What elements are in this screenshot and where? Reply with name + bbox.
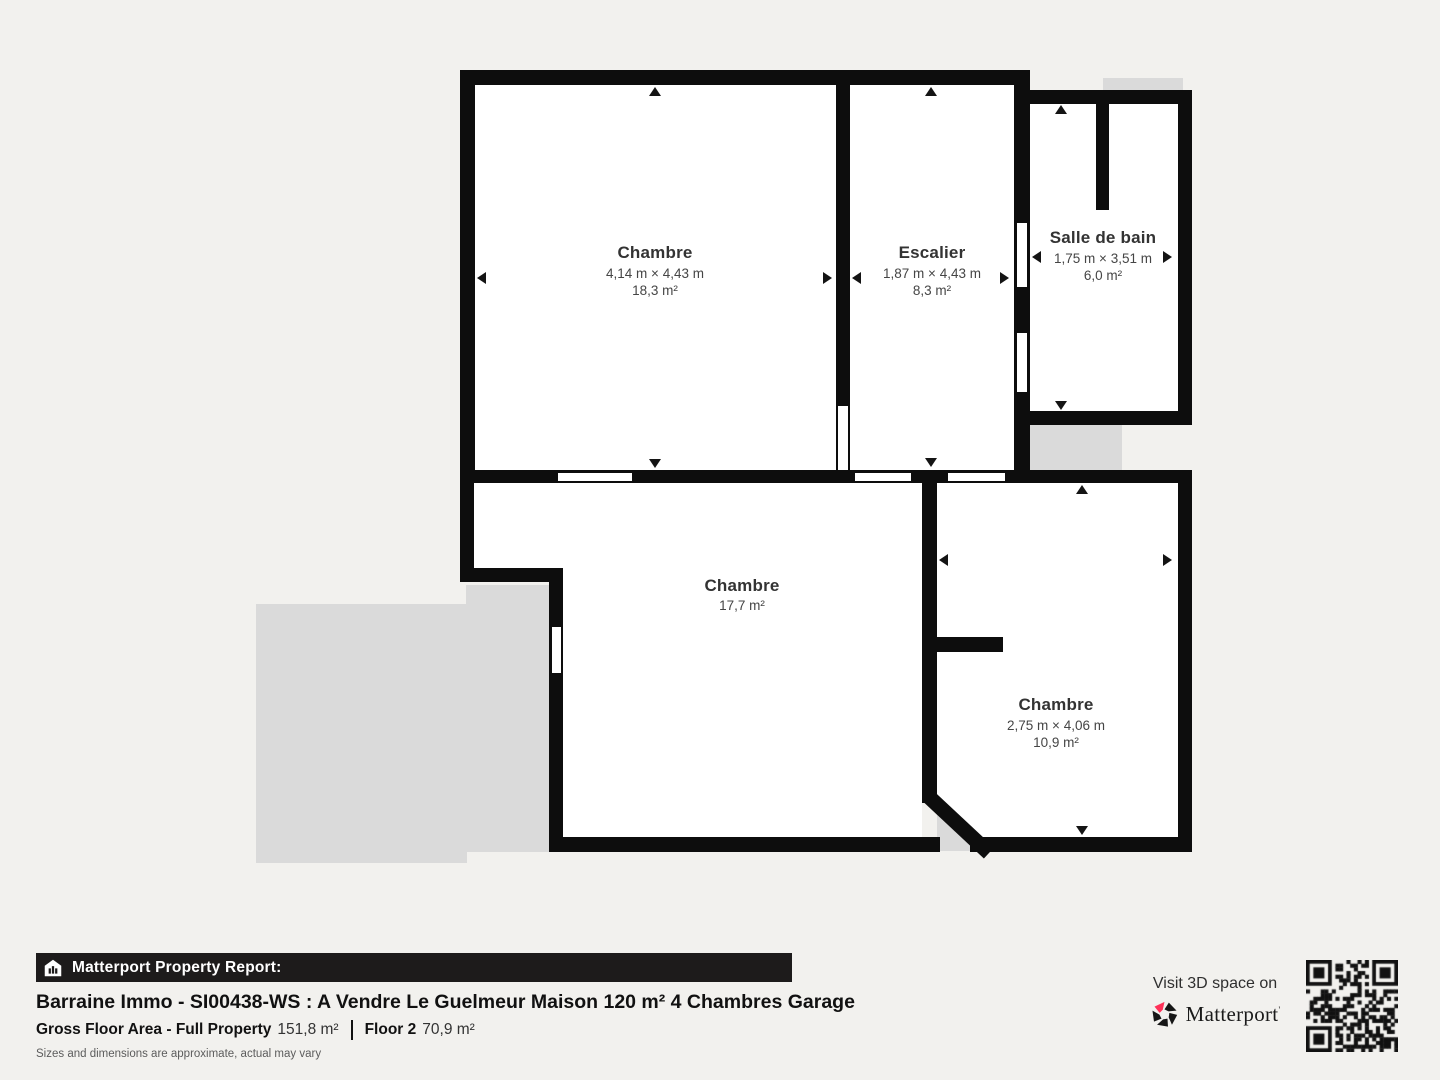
door-chambre1-escalier (838, 406, 848, 470)
shadow-terrace-left (256, 604, 467, 863)
door-bathroom-lower (1017, 333, 1027, 392)
wall-left-step (460, 568, 563, 582)
visit-3d-label: Visit 3D space on (1140, 975, 1290, 993)
dim-arrow-right-chambre-1 (823, 272, 832, 284)
matterport-logo: Matterport' (1140, 1000, 1290, 1029)
gross-area-label: Gross Floor Area - Full Property (36, 1021, 271, 1039)
shadow-below-bathroom (1030, 425, 1122, 470)
area-summary: Gross Floor Area - Full Property 151,8 m… (36, 1020, 475, 1040)
matterport-pinwheel-icon (1150, 1000, 1179, 1029)
report-banner: Matterport Property Report: (36, 953, 792, 982)
room-fill-chambre-3 (937, 483, 1178, 837)
wall-stub-chambre-3 (937, 637, 1003, 652)
wall-right-chambre-3 (1178, 483, 1192, 852)
wall-bottom-chambre-3 (970, 837, 1192, 852)
divider (351, 1020, 353, 1040)
floor-label: Floor 2 (365, 1021, 417, 1039)
room-area: 18,3 m² (606, 283, 704, 298)
room-area: 8,3 m² (883, 283, 981, 298)
door-bathroom-upper (1017, 223, 1027, 287)
wall-left-lower-vertical (549, 578, 563, 852)
shadow-terrace-right (466, 585, 549, 852)
wall-bathroom-stub (1096, 100, 1109, 210)
wall-top (460, 70, 1030, 85)
room-name: Escalier (883, 243, 981, 263)
matterport-house-icon (44, 959, 62, 977)
dim-arrow-right-chambre-3 (1163, 554, 1172, 566)
dim-arrow-left-chambre-1 (477, 272, 486, 284)
room-dimensions: 2,75 m × 4,06 m (1007, 718, 1105, 733)
room-name: Chambre (606, 243, 704, 263)
dim-arrow-down-bathroom (1055, 401, 1067, 410)
qr-code (1306, 960, 1398, 1052)
dim-arrow-right-bathroom (1163, 251, 1172, 263)
dim-arrow-left-escalier (852, 272, 861, 284)
door-escalier-chambre2 (855, 473, 911, 481)
wall-bathroom-bottom (1014, 411, 1192, 425)
room-name: Chambre (704, 576, 779, 596)
room-area: 10,9 m² (1007, 735, 1105, 750)
dim-arrow-down-chambre-1 (649, 459, 661, 468)
room-dimensions: 1,75 m × 3,51 m (1050, 251, 1157, 266)
dim-arrow-up-chambre-3 (1076, 485, 1088, 494)
floor-area-value: 70,9 m² (422, 1021, 475, 1039)
room-label-chambre-2: Chambre 17,7 m² (704, 576, 779, 613)
room-dimensions: 1,87 m × 4,43 m (883, 266, 981, 281)
wall-left-chambre-1 (460, 70, 475, 483)
wall-bottom-chambre-2 (549, 837, 940, 852)
dim-arrow-down-chambre-3 (1076, 826, 1088, 835)
room-name: Chambre (1007, 695, 1105, 715)
room-label-escalier: Escalier 1,87 m × 4,43 m 8,3 m² (883, 243, 981, 298)
room-area: 17,7 m² (704, 598, 779, 613)
room-label-chambre-3: Chambre 2,75 m × 4,06 m 10,9 m² (1007, 695, 1105, 750)
door-escalier-chambre3 (948, 473, 1005, 481)
room-label-chambre-1: Chambre 4,14 m × 4,43 m 18,3 m² (606, 243, 704, 298)
room-dimensions: 4,14 m × 4,43 m (606, 266, 704, 281)
room-area: 6,0 m² (1050, 268, 1157, 283)
dim-arrow-left-chambre-3 (939, 554, 948, 566)
door-chambre1-chambre2 (558, 473, 632, 481)
room-name: Salle de bain (1050, 228, 1157, 248)
listing-title: Barraine Immo - SI00438-WS : A Vendre Le… (36, 991, 855, 1014)
wall-chambre2-chambre3 (922, 483, 937, 803)
window-chambre-2 (552, 627, 561, 673)
dim-arrow-up-escalier (925, 87, 937, 96)
room-label-salle-de-bain: Salle de bain 1,75 m × 3,51 m 6,0 m² (1050, 228, 1157, 283)
wall-left-lower-upper (460, 483, 474, 578)
dim-arrow-down-escalier (925, 458, 937, 467)
visit-3d-block: Visit 3D space on Matterport' (1140, 975, 1290, 1029)
report-banner-label: Matterport Property Report: (72, 959, 282, 977)
matterport-wordmark: Matterport' (1186, 1002, 1281, 1027)
dim-arrow-up-bathroom (1055, 105, 1067, 114)
dim-arrow-right-escalier (1000, 272, 1009, 284)
dim-arrow-up-chambre-1 (649, 87, 661, 96)
property-report-page: Chambre 4,14 m × 4,43 m 18,3 m² Escalier… (0, 0, 1440, 1080)
dim-arrow-left-bathroom (1032, 251, 1041, 263)
gross-area-value: 151,8 m² (277, 1021, 338, 1039)
wall-bathroom-right (1178, 90, 1192, 425)
room-fill-chambre-2b (563, 483, 922, 837)
disclaimer-text: Sizes and dimensions are approximate, ac… (36, 1048, 321, 1060)
